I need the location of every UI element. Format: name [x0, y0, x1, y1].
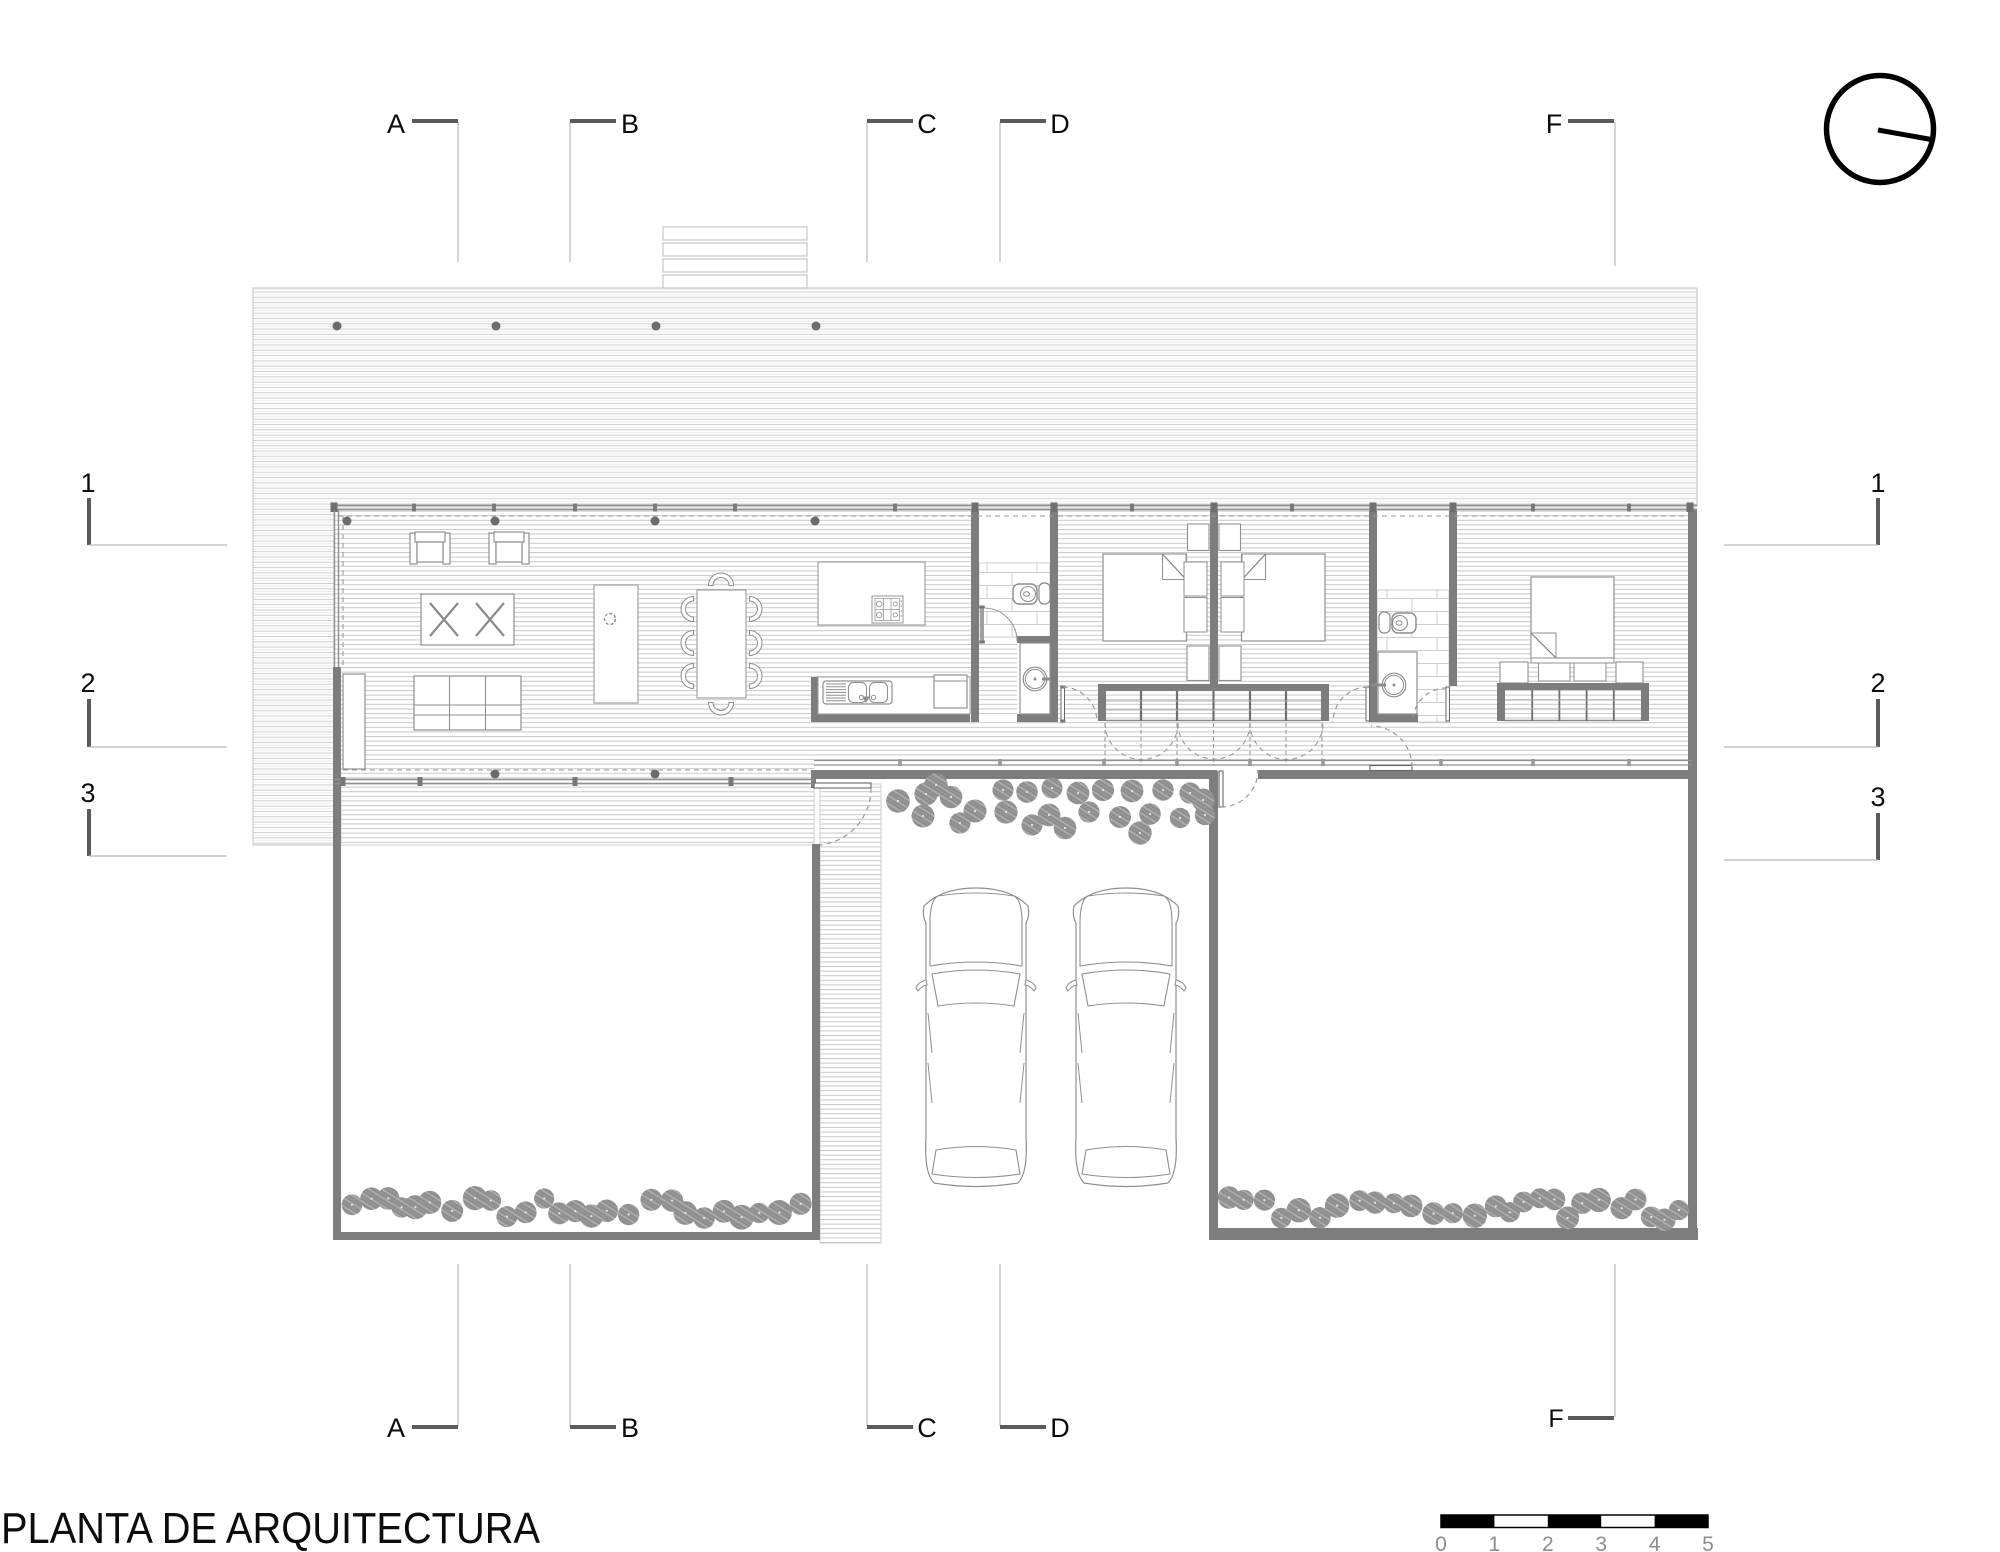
svg-text:3: 3: [1595, 1533, 1607, 1552]
svg-text:F: F: [1548, 1405, 1563, 1433]
svg-text:B: B: [621, 109, 639, 139]
svg-text:A: A: [387, 1413, 405, 1443]
svg-text:F: F: [1546, 109, 1563, 139]
svg-text:1: 1: [80, 468, 95, 498]
svg-text:0: 0: [1435, 1533, 1447, 1552]
svg-text:4: 4: [1649, 1533, 1661, 1552]
svg-text:5: 5: [1702, 1533, 1714, 1552]
svg-text:C: C: [917, 109, 937, 139]
svg-text:2: 2: [1870, 668, 1885, 698]
svg-text:D: D: [1050, 109, 1070, 139]
svg-text:3: 3: [80, 778, 95, 808]
svg-text:1: 1: [1489, 1533, 1501, 1552]
svg-text:PLANTA DE ARQUITECTURA: PLANTA DE ARQUITECTURA: [1, 1504, 541, 1552]
svg-text:A: A: [387, 109, 405, 139]
svg-text:1: 1: [1870, 468, 1885, 498]
svg-text:2: 2: [80, 668, 95, 698]
svg-text:3: 3: [1870, 782, 1885, 812]
svg-text:C: C: [917, 1413, 937, 1443]
svg-text:B: B: [621, 1413, 639, 1443]
svg-text:D: D: [1050, 1413, 1070, 1443]
svg-text:2: 2: [1542, 1533, 1554, 1552]
